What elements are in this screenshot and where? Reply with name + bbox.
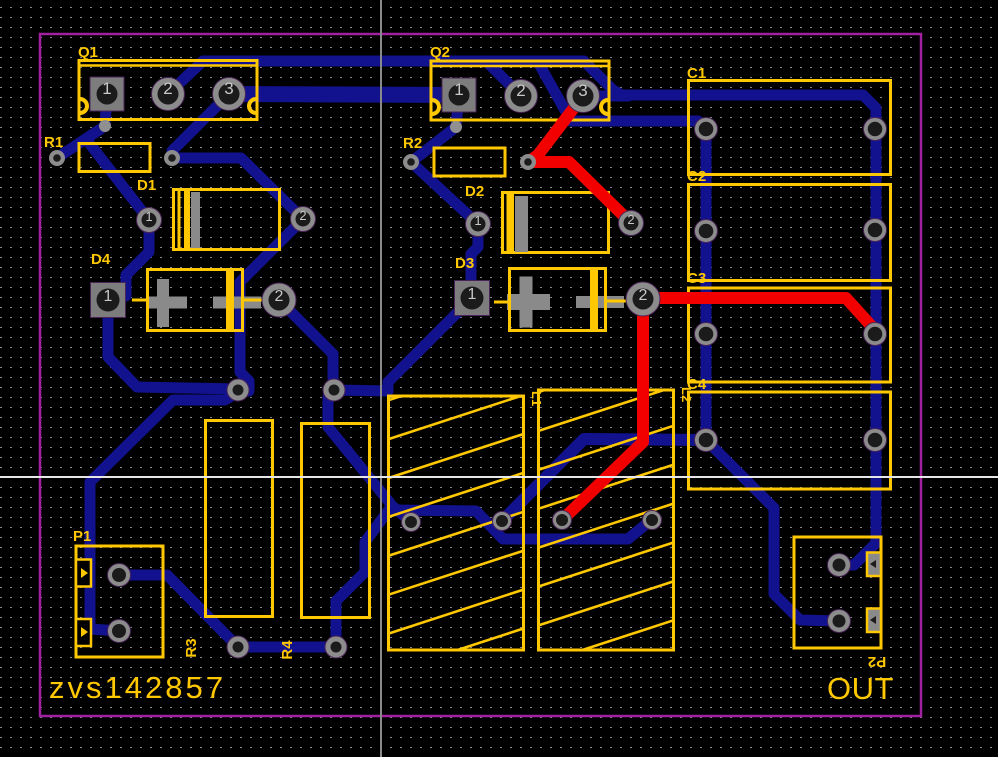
svg-text:3: 3 — [224, 79, 233, 98]
svg-text:2: 2 — [516, 81, 525, 100]
svg-text:P2: P2 — [868, 653, 886, 670]
svg-text:L1: L1 — [529, 391, 544, 406]
svg-text:R2: R2 — [403, 135, 422, 152]
svg-text:D2: D2 — [465, 183, 484, 200]
svg-text:C1: C1 — [687, 65, 706, 82]
svg-text:1: 1 — [102, 79, 111, 98]
svg-text:R1: R1 — [44, 134, 63, 151]
svg-text:1: 1 — [474, 213, 481, 228]
svg-text:D1: D1 — [137, 177, 156, 194]
svg-text:zvs142857: zvs142857 — [49, 670, 226, 705]
svg-text:1: 1 — [145, 209, 152, 224]
svg-text:P1: P1 — [73, 528, 91, 545]
svg-text:D4: D4 — [91, 251, 111, 268]
svg-text:R4: R4 — [279, 640, 296, 660]
svg-text:2: 2 — [163, 79, 172, 98]
svg-text:2: 2 — [627, 212, 634, 227]
svg-text:Q2: Q2 — [430, 44, 450, 61]
svg-text:2: 2 — [299, 208, 306, 223]
svg-text:1: 1 — [468, 286, 477, 303]
svg-text:L2: L2 — [679, 387, 694, 402]
svg-text:2: 2 — [639, 287, 648, 304]
svg-text:1: 1 — [104, 288, 113, 305]
svg-text:R3: R3 — [183, 638, 200, 657]
svg-text:D3: D3 — [455, 255, 474, 272]
svg-text:3: 3 — [578, 81, 587, 100]
svg-text:1: 1 — [454, 80, 463, 99]
svg-text:C3: C3 — [687, 270, 706, 287]
svg-text:C2: C2 — [687, 168, 706, 185]
svg-text:OUT: OUT — [827, 671, 894, 706]
svg-text:Q1: Q1 — [78, 44, 98, 61]
svg-text:2: 2 — [275, 288, 284, 305]
